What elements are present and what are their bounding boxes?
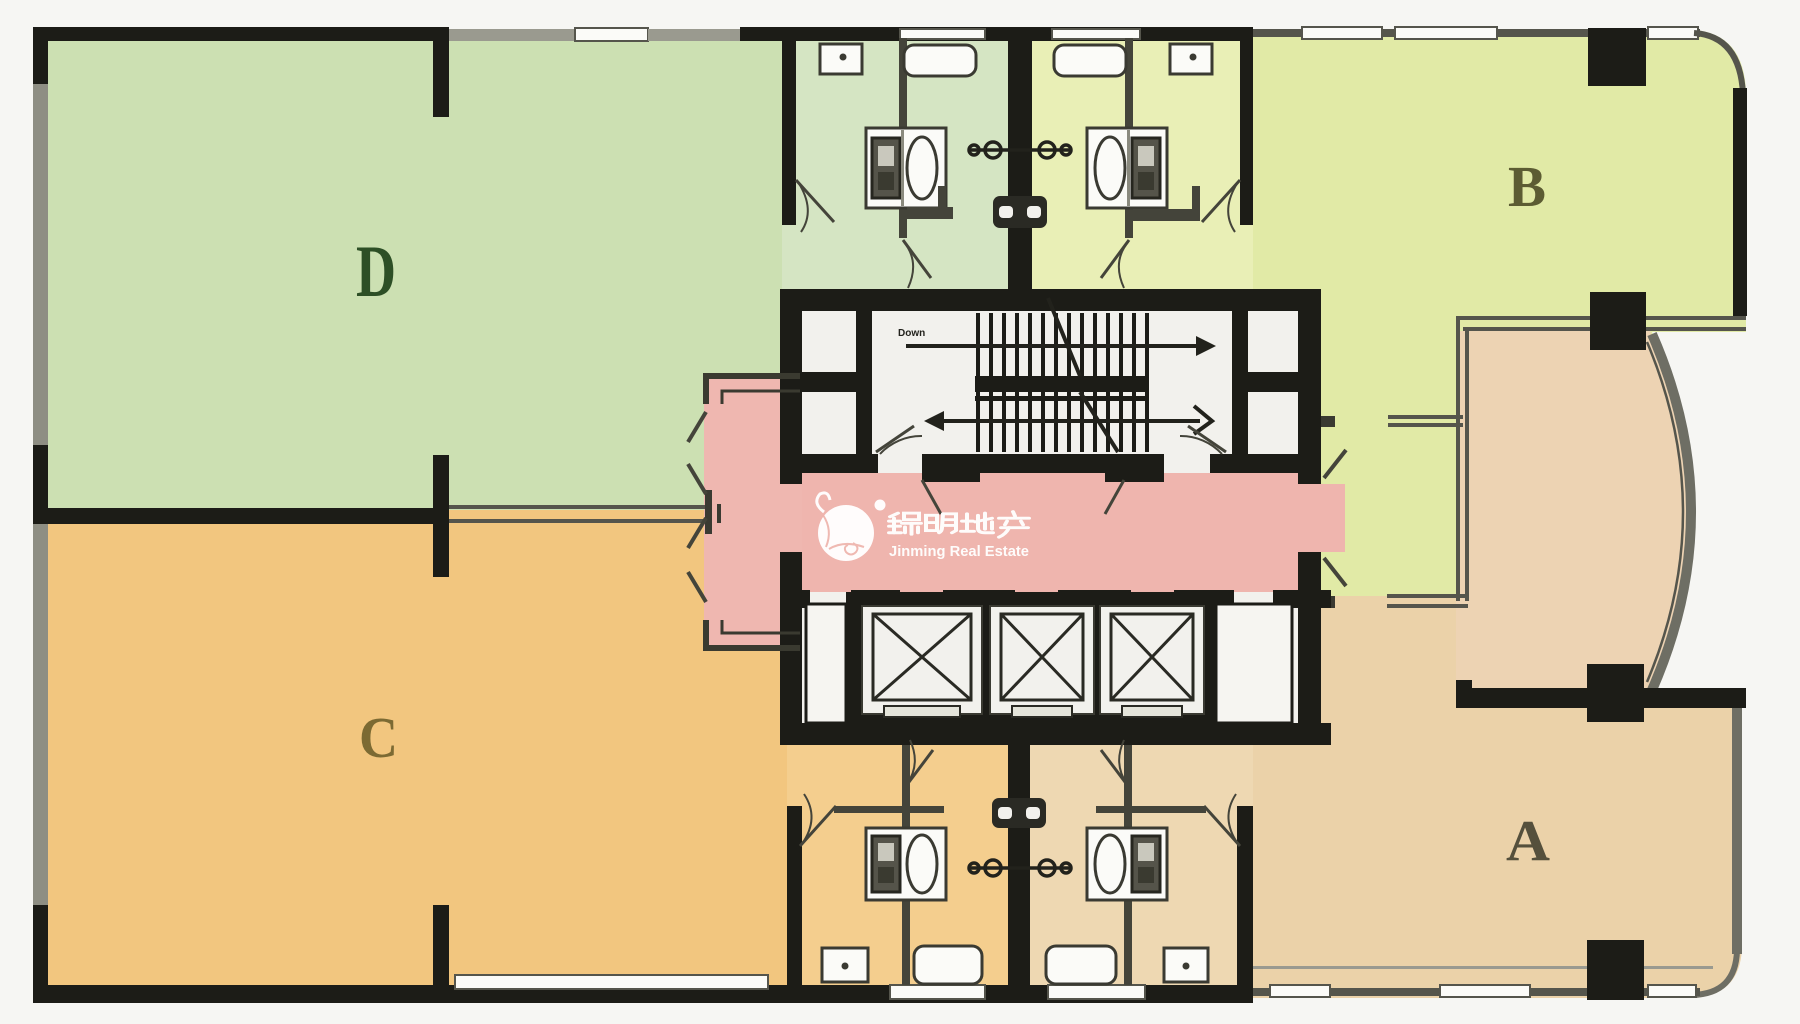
svg-text:A: A: [1506, 808, 1550, 873]
svg-text:Jinming Real Estate: Jinming Real Estate: [889, 543, 1029, 560]
svg-text:Down: Down: [898, 328, 925, 339]
svg-text:D: D: [356, 231, 396, 313]
svg-text:C: C: [359, 705, 398, 770]
svg-text:B: B: [1508, 154, 1546, 219]
